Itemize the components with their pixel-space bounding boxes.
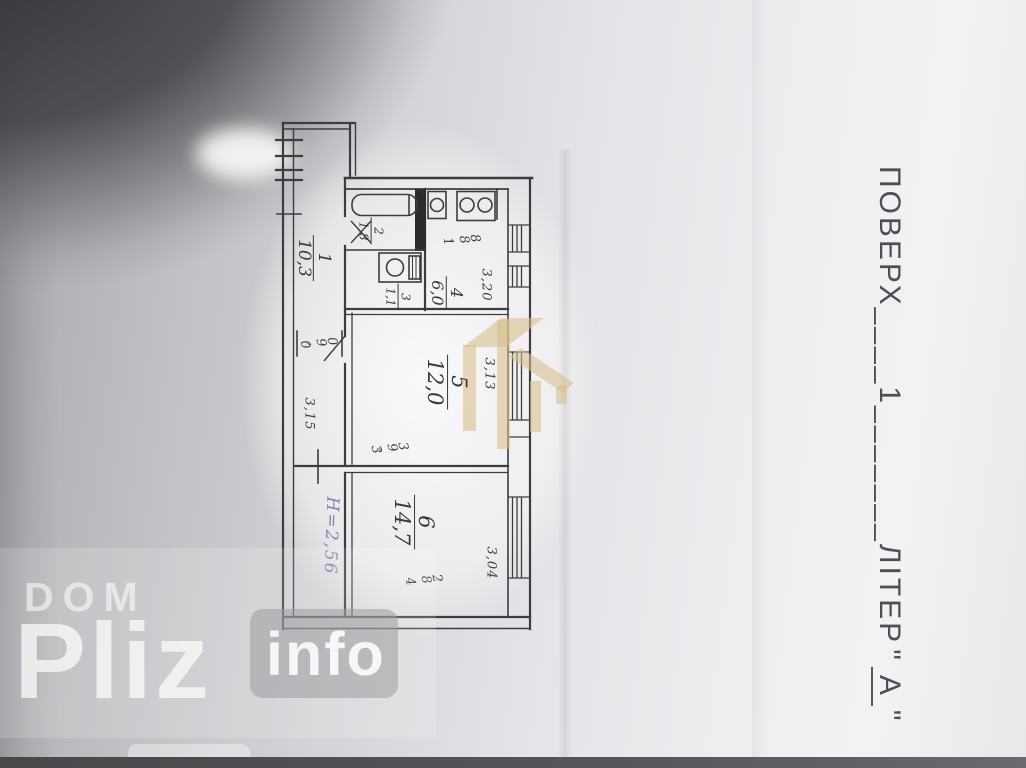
room-label-5: 5 12,0 — [424, 355, 470, 410]
room-area: 10,3 — [294, 235, 314, 281]
room-label-2: 2 1,8 — [357, 217, 384, 244]
photo-bottom-edge — [0, 757, 1026, 768]
floorplan-photo: 1 10,3 2 1,8 3 1,1 4 6,0 5 12,0 6 14,7 3… — [0, 0, 1026, 768]
room-number: 6 — [415, 513, 437, 530]
room-number: 3 — [399, 291, 412, 303]
title-letter: А — [871, 667, 906, 706]
room-area: 12,0 — [424, 355, 448, 410]
watermark-pliz: Pliz — [14, 598, 212, 723]
logo-shape — [463, 318, 574, 449]
room-number: 2 — [372, 225, 385, 237]
watermark-info-box: info — [250, 609, 398, 698]
dim-kitchen-depth: 3,20 — [479, 269, 494, 302]
room-number: 5 — [448, 373, 470, 390]
title-word-poverh: ПОВЕРХ — [873, 166, 906, 308]
room-area: 14,7 — [391, 495, 415, 550]
title-blank: ____ — [873, 308, 906, 387]
room-label-3: 3 1,1 — [384, 283, 411, 310]
title-word-liter: ЛІТЕР — [873, 544, 906, 645]
dim-room6-right: 3,04 — [484, 547, 499, 580]
title-floor-number: 1 — [873, 386, 906, 406]
room-area: 1,8 — [357, 217, 372, 244]
room-number: 4 — [447, 286, 464, 300]
floor-title: ПОВЕРХ____1_______ЛІТЕР"А" — [872, 166, 906, 728]
room-area: 1,1 — [384, 283, 399, 310]
room-label-4: 4 6,0 — [428, 276, 464, 309]
dim-room5-right: 3,13 — [482, 358, 497, 391]
watermark-info-label: info — [266, 619, 386, 689]
title-blank: _______ — [873, 406, 906, 544]
quote-close: " — [873, 710, 906, 724]
room-label-1: 1 10,3 — [294, 235, 332, 281]
room-label-6: 6 14,7 — [391, 495, 437, 550]
room-number: 1 — [314, 251, 332, 266]
room-area: 6,0 — [428, 276, 447, 309]
quote-open: " — [873, 649, 906, 663]
dim-room5-left: 3,15 — [302, 398, 317, 431]
